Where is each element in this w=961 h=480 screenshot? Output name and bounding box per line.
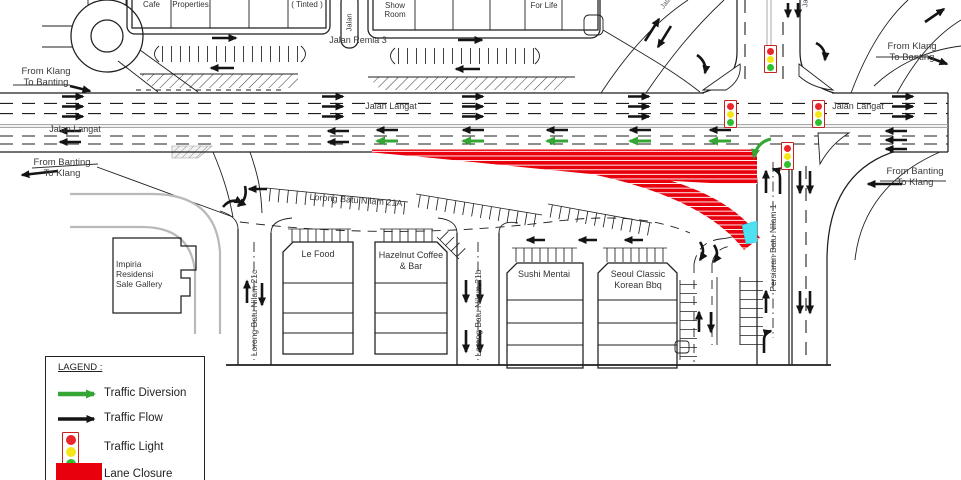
lane-closure-area bbox=[372, 150, 760, 251]
legend-title: LAGEND : bbox=[58, 362, 102, 373]
closure-wedge bbox=[372, 150, 757, 185]
traffic-light-icon bbox=[812, 100, 825, 128]
traffic-plan-canvas: Cafe Properties ( Tinted ) Show Room For… bbox=[0, 0, 961, 480]
flow-arrow-icon bbox=[56, 412, 104, 426]
legend-item-label: Lane Closure bbox=[104, 468, 172, 480]
legend-item-label: Traffic Diversion bbox=[104, 387, 186, 399]
legend-item-label: Traffic Flow bbox=[104, 412, 163, 424]
legend-item-label: Traffic Light bbox=[104, 441, 163, 453]
traffic-arrows bbox=[22, 3, 947, 360]
legend: LAGEND : Traffic Diversion Traffic Flow … bbox=[45, 356, 205, 480]
traffic-light-icon bbox=[764, 45, 777, 73]
lane-closure-swatch bbox=[56, 463, 102, 480]
road-network bbox=[0, 0, 961, 368]
diversion-arrow-icon bbox=[56, 387, 104, 401]
traffic-light-icon bbox=[724, 100, 737, 128]
traffic-light-icon bbox=[781, 142, 794, 170]
